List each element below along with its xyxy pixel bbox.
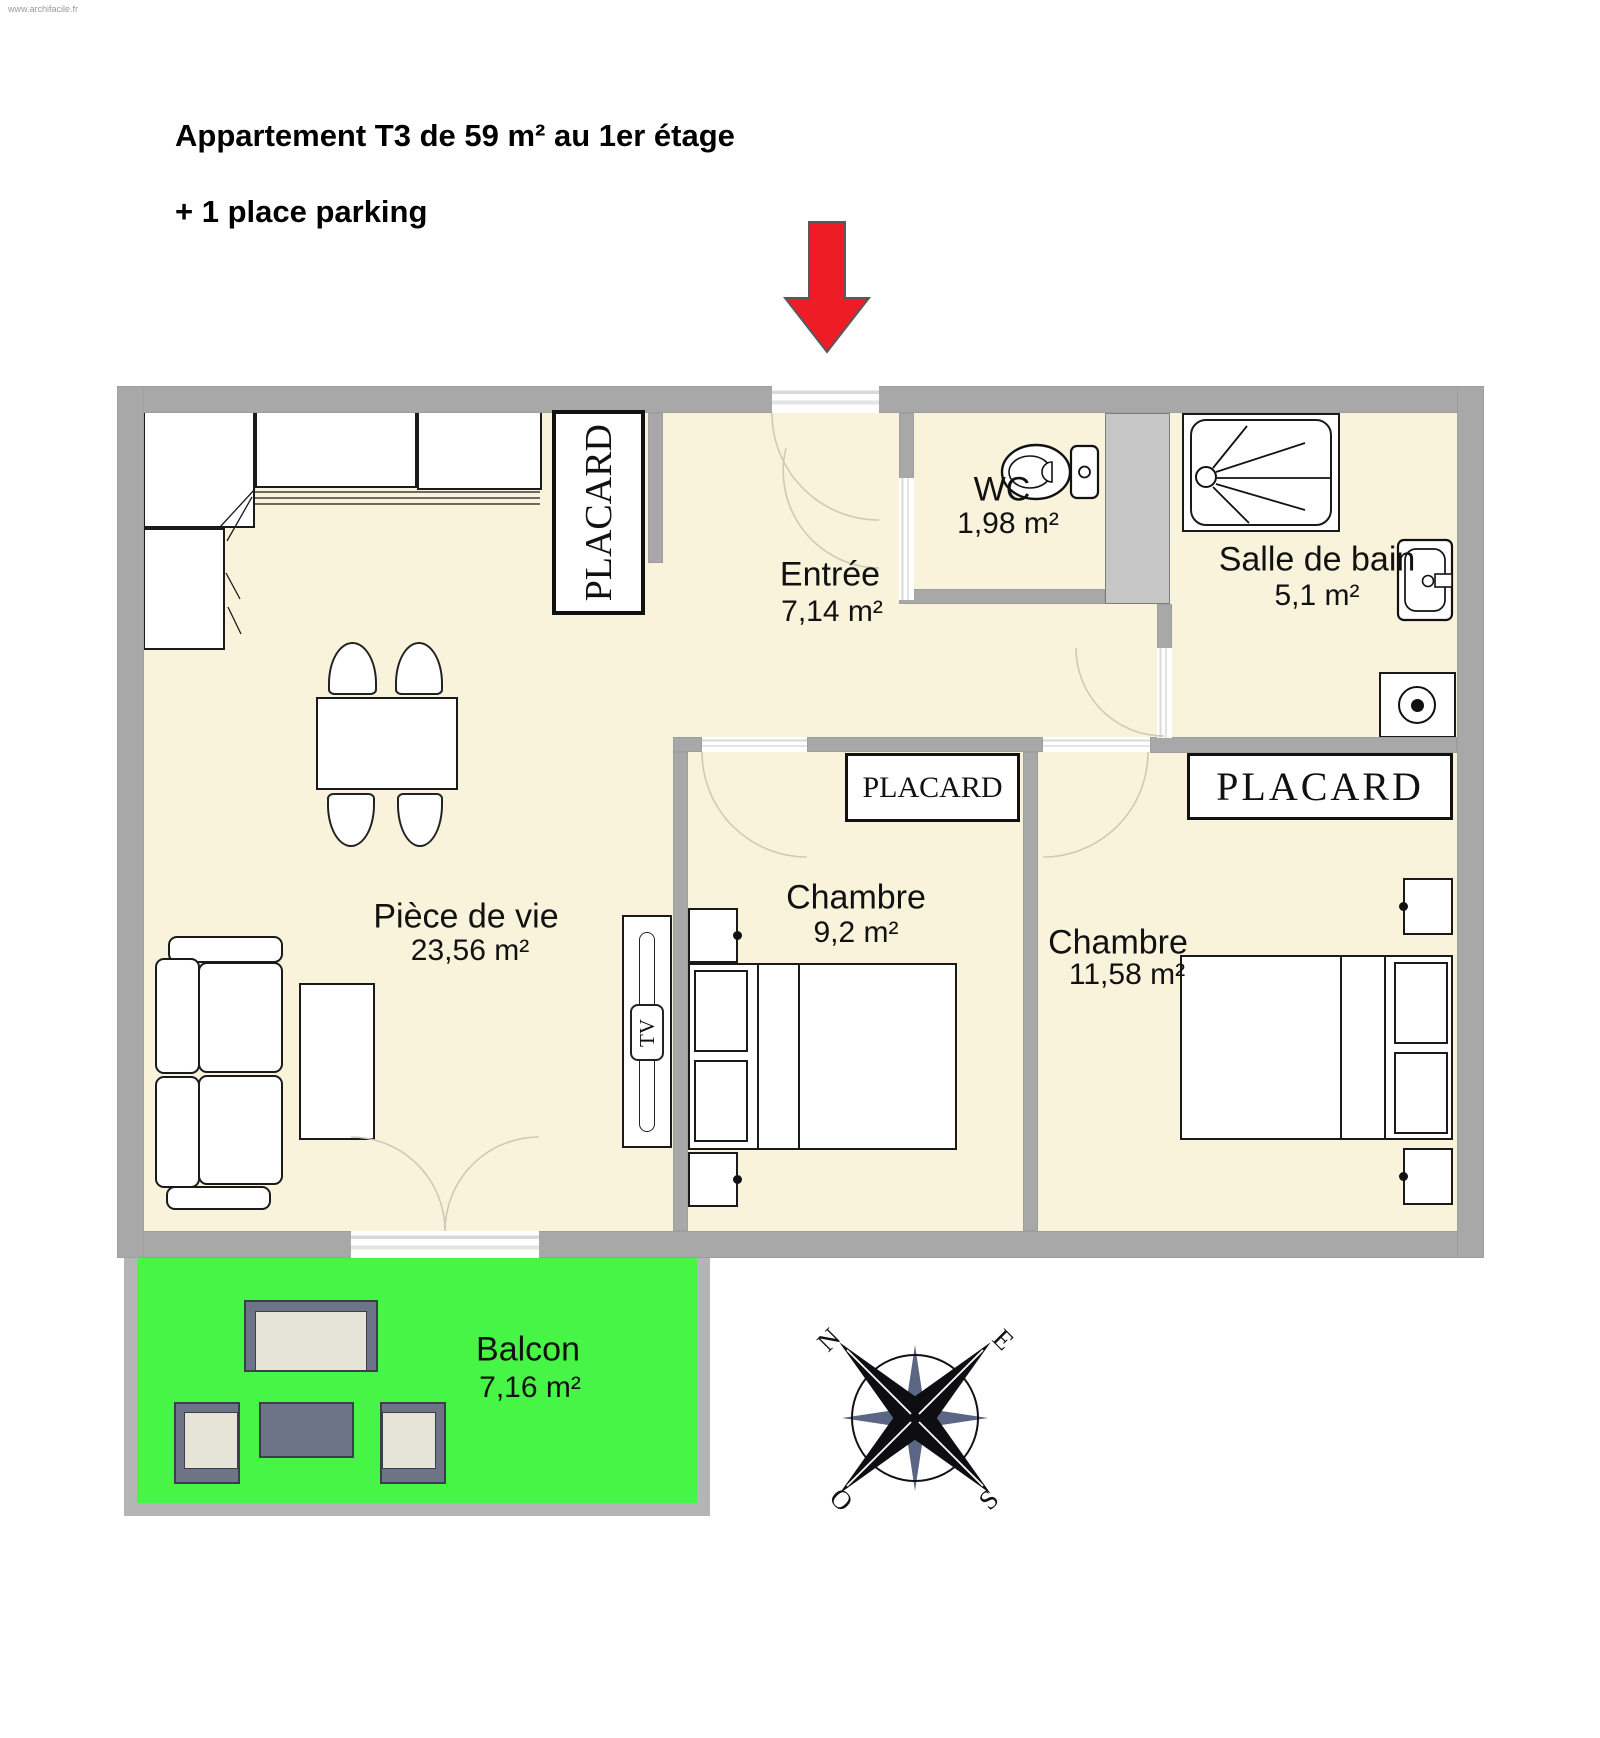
coffee-table	[299, 983, 375, 1140]
area-chambre2: 11,58 m²	[1069, 958, 1185, 992]
kitchen-corner-unit	[143, 411, 255, 528]
compass-label-south: S	[973, 1484, 1005, 1516]
balcony-table	[259, 1402, 354, 1458]
closet-chambre1-label: PLACARD	[862, 771, 1002, 805]
balcony-bench-cushion	[255, 1311, 367, 1371]
chambre2-door	[1043, 737, 1150, 752]
area-chambre1: 9,2 m²	[813, 916, 898, 950]
bed-ch2-pillow-2	[1394, 1052, 1448, 1134]
bed-ch1-pillow-1	[694, 970, 748, 1052]
page-title: Appartement T3 de 59 m² au 1er étage	[175, 118, 735, 154]
wall-outer-bottom	[117, 1231, 1484, 1258]
kitchen-counter-left	[143, 528, 225, 650]
sofa-back-cushion-2	[155, 1076, 200, 1188]
dining-table	[316, 697, 458, 790]
area-piece-de-vie: 23,56 m²	[411, 934, 529, 968]
label-balcon: Balcon	[476, 1331, 580, 1370]
technical-shaft	[1105, 413, 1170, 604]
label-salle-de-bain: Salle de bain	[1219, 541, 1416, 580]
nightstand-ch2-bottom	[1403, 1148, 1453, 1205]
balcony-french-door	[351, 1231, 539, 1258]
wall-hall-closet	[648, 413, 663, 563]
kitchen-counter-top-b	[417, 411, 542, 490]
balcony-chair-right-cushion	[382, 1412, 436, 1469]
area-entree: 7,14 m²	[781, 595, 883, 629]
kitchen-counter-top-a	[255, 411, 417, 488]
wall-outer-left	[117, 386, 144, 1258]
compass-major-points	[839, 1342, 990, 1493]
washing-machine-dot	[1411, 699, 1424, 712]
nightstand-ch1-bottom	[688, 1152, 738, 1207]
compass-point-highlights	[847, 1350, 983, 1486]
tv-box: TV	[630, 1004, 664, 1061]
wall-wc-bottom	[899, 589, 1105, 604]
nightstand-ch2-top-knob	[1399, 902, 1408, 911]
wall-outer-right	[1457, 386, 1484, 1258]
bed-ch1-pillow-2	[694, 1060, 748, 1142]
closet-hall: PLACARD	[552, 410, 645, 615]
wall-bedrooms-top-b	[807, 737, 1043, 752]
bed-ch1-sheet-band	[757, 963, 800, 1150]
sofa-seat-cushion-2	[198, 1075, 283, 1185]
balcony-wall-bottom	[124, 1503, 710, 1516]
shower-tray	[1190, 419, 1332, 526]
wall-bathroom-bottom	[1150, 737, 1457, 753]
label-piece-de-vie: Pièce de vie	[373, 898, 558, 937]
wall-living-chambre1	[673, 752, 688, 1231]
sofa-seat-cushion-1	[198, 962, 283, 1073]
nightstand-ch1-bottom-knob	[733, 1175, 742, 1184]
tv-label: TV	[635, 1019, 660, 1047]
label-wc: WC	[974, 471, 1031, 510]
closet-chambre1: PLACARD	[845, 753, 1020, 822]
area-balcon: 7,16 m²	[479, 1371, 581, 1405]
chambre1-door	[702, 737, 807, 752]
bed-ch2-pillow-1	[1394, 962, 1448, 1044]
floorplan-canvas: www.archifacile.fr Appartement T3 de 59 …	[0, 0, 1600, 1738]
bathroom-door	[1157, 648, 1172, 738]
compass-label-west: O	[824, 1482, 859, 1517]
area-salle-de-bain: 5,1 m²	[1274, 579, 1359, 613]
area-wc: 1,98 m²	[957, 507, 1059, 541]
compass-minor-points	[842, 1345, 988, 1491]
label-chambre2: Chambre	[1048, 924, 1188, 963]
label-chambre1: Chambre	[786, 879, 926, 918]
closet-chambre2-label: PLACARD	[1216, 763, 1424, 810]
bed-ch2-sheet-band	[1340, 955, 1386, 1140]
wall-bedrooms-top-a	[673, 737, 702, 752]
nightstand-ch2-bottom-knob	[1399, 1172, 1408, 1181]
balcony-wall-right	[697, 1258, 710, 1516]
nightstand-ch1-top-knob	[733, 931, 742, 940]
compass-circle	[852, 1355, 978, 1481]
label-entree: Entrée	[780, 556, 880, 595]
nightstand-ch1-top	[688, 908, 738, 963]
closet-hall-label: PLACARD	[577, 424, 621, 601]
balcony-wall-left	[124, 1258, 137, 1516]
wc-door	[899, 478, 914, 600]
page-subtitle: + 1 place parking	[175, 194, 427, 230]
balcony-chair-left-cushion	[184, 1412, 238, 1469]
compass-label-north: N	[811, 1322, 846, 1357]
wall-entree-wc	[899, 413, 914, 483]
sofa-back-cushion-1	[155, 958, 200, 1074]
entrance-door	[772, 386, 879, 413]
closet-chambre2: PLACARD	[1187, 753, 1453, 820]
compass-label-east: E	[987, 1323, 1020, 1356]
entrance-arrow-icon	[785, 222, 869, 352]
wall-bathroom-left	[1157, 604, 1172, 652]
sofa-armrest-bottom	[166, 1186, 271, 1210]
watermark: www.archifacile.fr	[8, 4, 78, 14]
compass-labels: N E S O	[811, 1322, 1020, 1517]
wall-chambre1-chambre2	[1023, 752, 1038, 1231]
compass-rose: N E S O	[811, 1322, 1020, 1517]
nightstand-ch2-top	[1403, 878, 1453, 935]
